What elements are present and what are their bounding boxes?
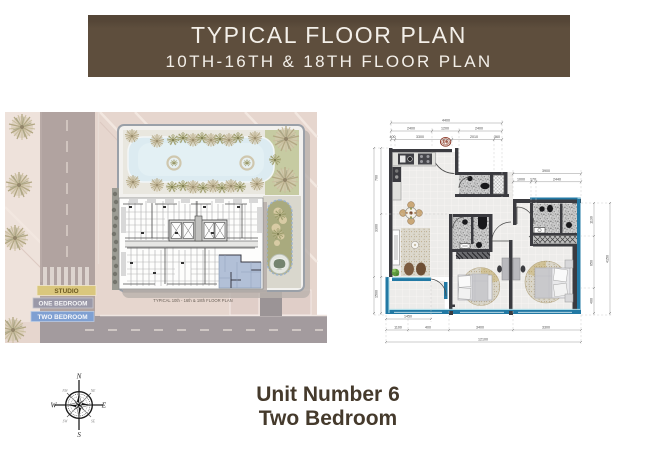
svg-text:650: 650	[590, 260, 594, 266]
svg-text:2010: 2010	[470, 135, 478, 139]
svg-text:1000: 1000	[517, 177, 525, 181]
svg-text:S: S	[77, 431, 81, 439]
svg-text:1100: 1100	[394, 326, 402, 330]
svg-text:1450: 1450	[404, 315, 412, 319]
svg-text:NE: NE	[90, 389, 96, 393]
svg-text:06: 06	[443, 140, 449, 146]
svg-text:4150: 4150	[606, 255, 610, 263]
svg-text:1200: 1200	[441, 127, 449, 131]
svg-text:170: 170	[530, 177, 536, 181]
svg-text:E: E	[101, 402, 107, 410]
svg-text:2400: 2400	[475, 127, 483, 131]
svg-text:2440: 2440	[553, 177, 561, 181]
svg-text:400: 400	[390, 135, 396, 139]
svg-text:TYPICAL 10th - 16th & 18th FLO: TYPICAL 10th - 16th & 18th FLOOR PLAN	[153, 298, 232, 303]
svg-text:400: 400	[425, 326, 431, 330]
svg-text:TWO BEDROOM: TWO BEDROOM	[37, 314, 87, 321]
svg-text:4400: 4400	[442, 119, 450, 123]
svg-text:3400: 3400	[476, 326, 484, 330]
svg-text:360: 360	[494, 135, 500, 139]
svg-text:SE: SE	[91, 420, 96, 424]
svg-text:ONE BEDROOM: ONE BEDROOM	[39, 301, 88, 308]
svg-text:3300: 3300	[542, 326, 550, 330]
svg-text:STUDIO: STUDIO	[54, 288, 78, 295]
svg-text:1500: 1500	[375, 290, 379, 298]
svg-text:3300: 3300	[416, 135, 424, 139]
svg-text:3900: 3900	[542, 169, 550, 173]
svg-text:1130: 1130	[590, 216, 594, 224]
svg-text:W: W	[51, 402, 58, 410]
svg-text:400: 400	[590, 298, 594, 304]
svg-text:12100: 12100	[478, 338, 488, 342]
svg-text:2400: 2400	[407, 127, 415, 131]
svg-text:SW: SW	[63, 420, 69, 424]
svg-text:NW: NW	[61, 389, 68, 393]
svg-text:700: 700	[375, 175, 379, 181]
svg-text:N: N	[76, 373, 83, 381]
svg-text:3300: 3300	[375, 224, 379, 232]
